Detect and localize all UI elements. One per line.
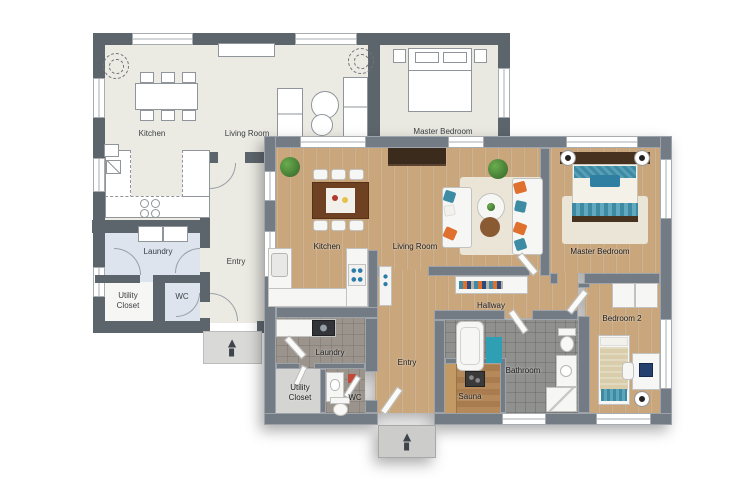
stove-burner (151, 209, 160, 218)
chair (349, 220, 364, 231)
room-label-utility-closet: Utility Closet (289, 383, 312, 403)
wall (578, 283, 590, 288)
wall (365, 400, 378, 413)
room-label-laundry: Laundry (316, 348, 345, 358)
room-label-living-room: Living Room (393, 242, 437, 252)
sofa (343, 77, 368, 137)
bed-throw (601, 389, 627, 401)
plant-icon (103, 53, 129, 79)
room-label-entry: Entry (227, 257, 246, 267)
washing-machine (312, 320, 335, 336)
wall (153, 275, 165, 325)
wall (95, 275, 140, 283)
wall (210, 152, 218, 163)
window (660, 319, 672, 389)
sauna-bench (445, 364, 457, 413)
plant-icon (487, 203, 495, 211)
stove-burner (151, 199, 160, 208)
wall (264, 413, 378, 425)
nightstand (474, 49, 487, 63)
wall (550, 273, 558, 284)
closet (612, 283, 658, 308)
window (498, 68, 510, 118)
nightstand (393, 49, 406, 63)
round-nightstand (634, 391, 650, 407)
chair (140, 72, 154, 83)
window (502, 413, 546, 425)
room-label-utility-closet: Utility Closet (117, 291, 140, 311)
sauna-stove (465, 371, 485, 387)
room-label-hallway: Hallway (477, 301, 505, 311)
wall (578, 316, 590, 413)
table-decor (332, 195, 338, 201)
wall (276, 307, 378, 318)
chair (161, 110, 175, 121)
chair (349, 169, 364, 180)
window (295, 33, 357, 45)
sink-basin (560, 365, 572, 377)
chair (161, 72, 175, 83)
bathtub-basin (460, 327, 480, 365)
room-label-entry: Entry (398, 358, 417, 368)
plant-icon (488, 159, 508, 179)
blanket-line (409, 70, 471, 71)
pillow (415, 52, 439, 63)
kitchen-sink (106, 160, 121, 174)
chair (140, 110, 154, 121)
window (660, 159, 672, 219)
room-label-sauna: Sauna (458, 392, 481, 402)
bed-cushion (590, 175, 620, 187)
window (596, 413, 651, 425)
window (132, 33, 193, 45)
wall (434, 310, 505, 320)
kitchen-sink (271, 253, 288, 277)
wall (93, 321, 203, 333)
pillow (514, 200, 527, 213)
plant-icon (280, 157, 300, 177)
desk-chair (622, 362, 634, 380)
table-runner (326, 188, 355, 213)
window (448, 136, 484, 148)
room-label-wc: WC (175, 292, 188, 302)
north-arrow-icon: ▲ (400, 432, 414, 451)
sink-basin (330, 379, 340, 391)
tv-cabinet (218, 43, 275, 57)
toilet-bowl (333, 403, 348, 416)
toilet (558, 328, 576, 336)
window (93, 78, 105, 118)
plant-icon (348, 48, 374, 74)
room-label-laundry: Laundry (144, 247, 173, 257)
washing-machine (163, 226, 188, 242)
books (459, 281, 503, 289)
window (300, 136, 366, 148)
dining-table (135, 83, 198, 110)
pillow (443, 52, 467, 63)
floorplan-canvas: ▲ Kitchen Living Room Master Bedroom Lau… (0, 0, 730, 487)
pillow (443, 204, 456, 217)
oven-column (379, 266, 392, 306)
toilet-bowl (560, 336, 574, 352)
ottoman (480, 217, 500, 237)
footboard (572, 216, 638, 222)
chair (313, 220, 328, 231)
tv-console (388, 148, 446, 166)
room-label-bedroom-2: Bedroom 2 (602, 314, 641, 324)
wall (434, 320, 445, 413)
kitchen-counter (182, 150, 210, 197)
cooktop (348, 264, 366, 286)
room-label-kitchen: Kitchen (314, 242, 341, 252)
stove-burner (140, 199, 149, 208)
room-label-master-bedroom: Master Bedroom (570, 247, 629, 257)
chair (182, 110, 196, 121)
bath-mat (486, 337, 502, 363)
table-decor (342, 197, 348, 203)
chair (331, 220, 346, 231)
chair (313, 169, 328, 180)
stove-burner (140, 209, 149, 218)
room-label-wc: WC (348, 393, 361, 403)
shower (546, 387, 577, 412)
floorplan-3d: ▲ Kitchen Living Room Master Bedroom Hal… (256, 131, 686, 465)
bed-throw (572, 203, 638, 216)
kitchen-appliance (104, 144, 119, 157)
wall (165, 275, 203, 283)
window (264, 171, 276, 201)
pillow (600, 337, 628, 346)
room-label-bathroom: Bathroom (506, 366, 541, 376)
chair (331, 169, 346, 180)
chair (182, 72, 196, 83)
wall (428, 266, 530, 276)
room-label-kitchen: Kitchen (139, 129, 166, 139)
window (566, 136, 638, 148)
wall (365, 318, 378, 372)
north-arrow-icon: ▲ (225, 338, 239, 357)
laptop (639, 363, 653, 377)
window (93, 158, 105, 192)
wall (276, 363, 300, 369)
washing-machine (138, 226, 163, 242)
